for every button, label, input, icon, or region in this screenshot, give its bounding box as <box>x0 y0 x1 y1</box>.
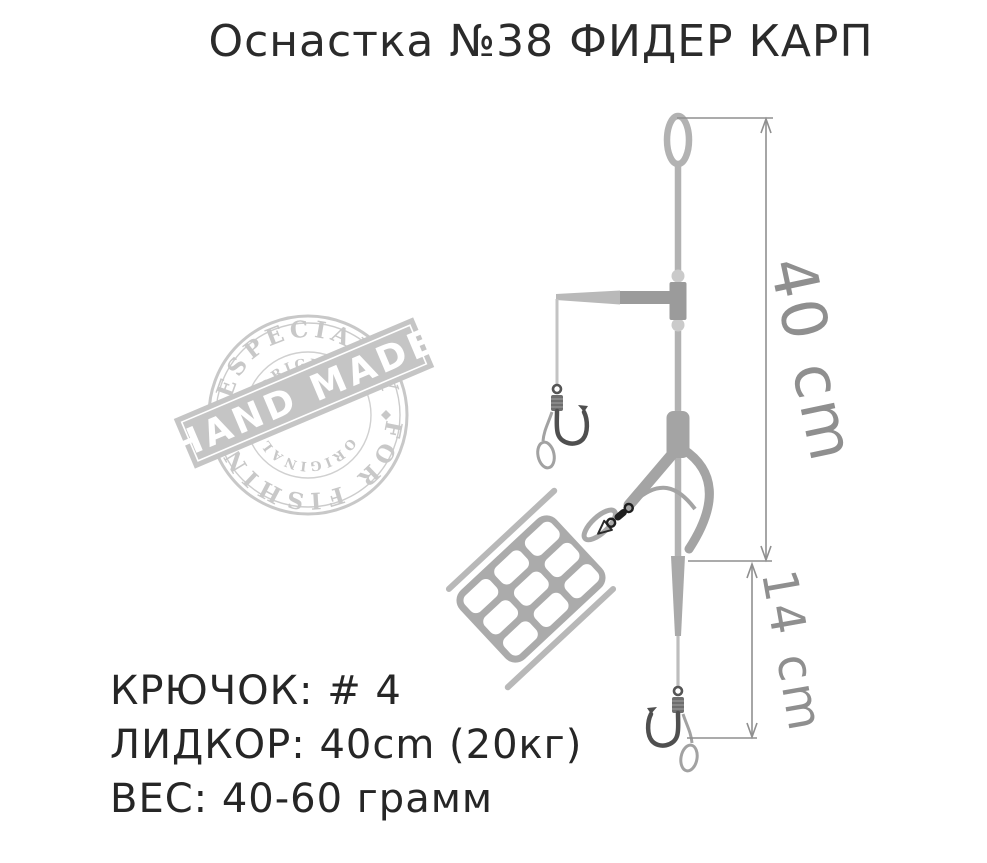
bead-lower <box>672 319 685 332</box>
spec-weight: ВЕС: 40-60 грамм <box>110 772 582 826</box>
spec-hook: КРЮЧОК: # 4 <box>110 664 582 718</box>
upper-hair-loop <box>535 441 556 470</box>
top-loop <box>667 116 689 164</box>
bottom-hook-eye <box>674 687 682 695</box>
junction-sleeve <box>667 411 690 458</box>
side-arm-boom <box>620 291 674 304</box>
upper-hook <box>535 385 588 469</box>
upper-hook-bend <box>557 411 587 444</box>
spec-leadcore: ЛИДКОР: 40cm (20кг) <box>110 718 582 772</box>
bottom-hair-loop <box>679 744 699 772</box>
bead-upper <box>672 270 685 283</box>
bottom-hook <box>647 687 699 772</box>
bottom-hook-bend <box>648 713 678 746</box>
page: Оснастка №38 ФИДЕР КАРП ESPECIALLY FOR F… <box>0 0 987 863</box>
feeder-cells <box>461 519 603 659</box>
feeder-branch <box>629 451 675 505</box>
side-arm-taper <box>556 291 620 305</box>
handmade-stamp: ESPECIALLY FOR FISHING ORIGINAL ORIGINAL… <box>162 313 445 515</box>
dimension-lines <box>677 118 773 738</box>
tail-boom-taper <box>671 556 685 636</box>
upper-hair <box>543 412 552 441</box>
dim-label-14cm: 14 cm <box>750 566 834 738</box>
feeder-cage <box>431 470 652 687</box>
spec-list: КРЮЧОК: # 4 ЛИДКОР: 40cm (20кг) ВЕС: 40-… <box>110 664 582 826</box>
stamp-separator-right <box>381 410 391 420</box>
upper-hook-eye <box>553 385 561 393</box>
dim-label-40cm: 40 cm <box>755 251 870 470</box>
